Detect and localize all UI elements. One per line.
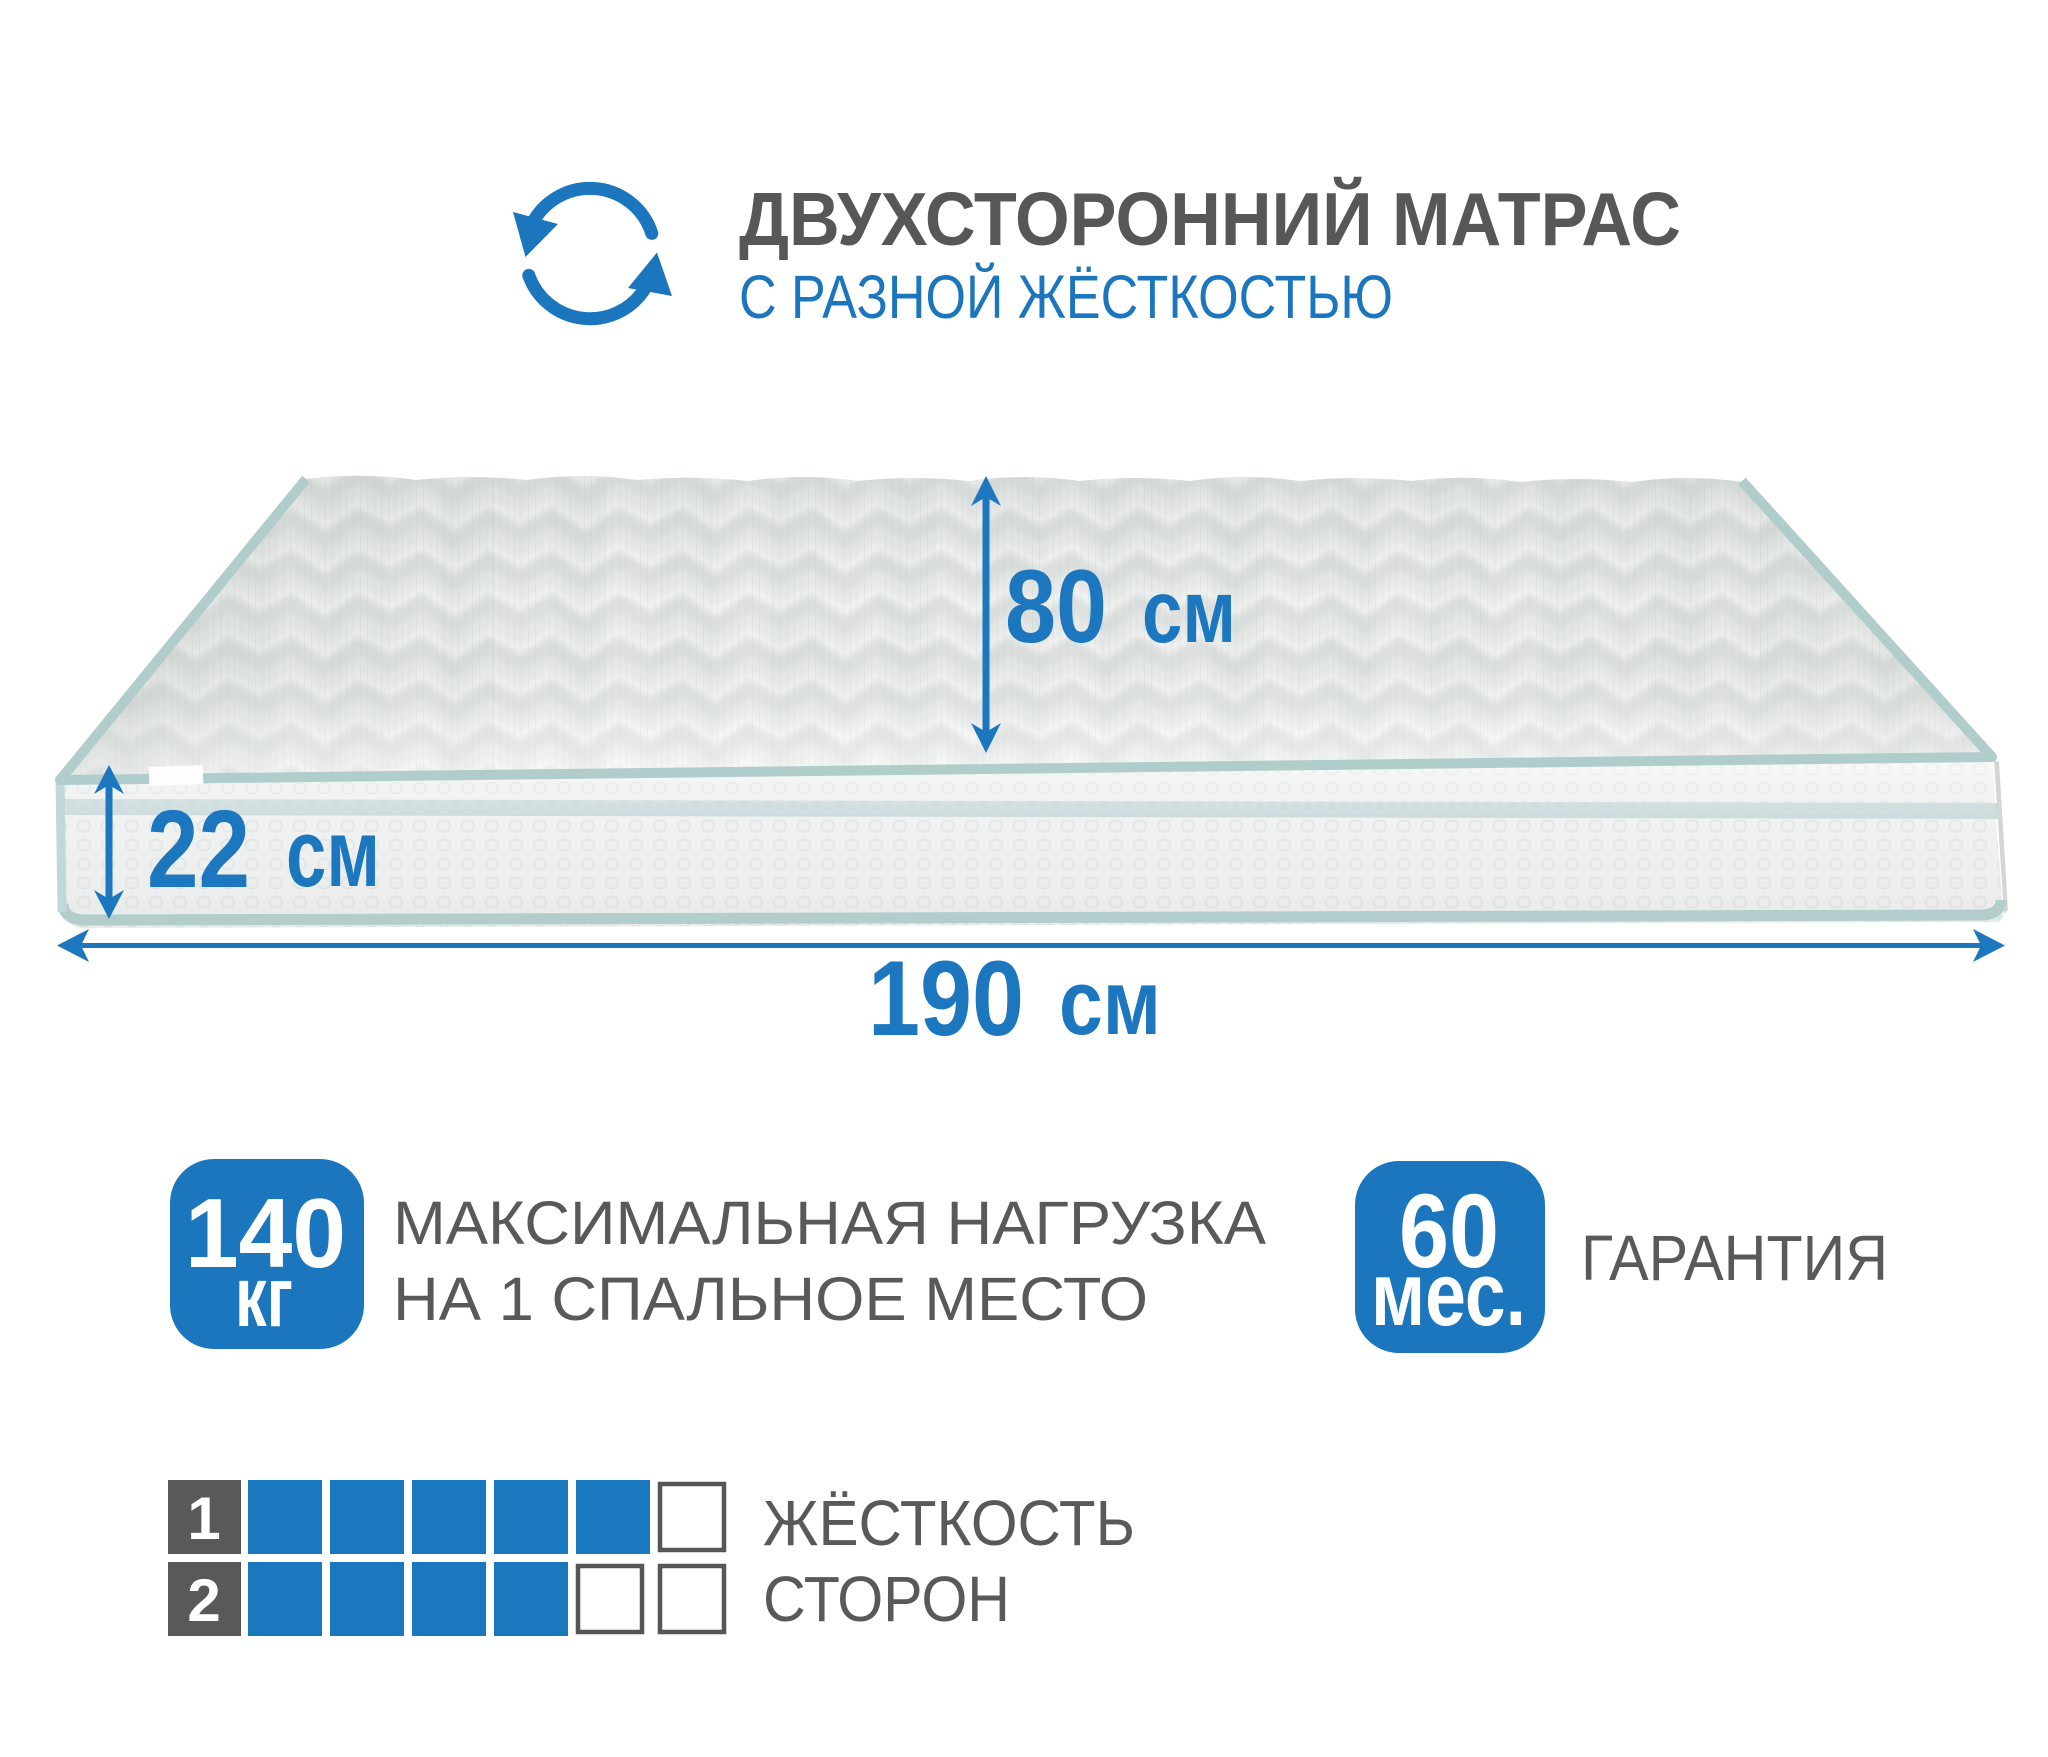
svg-text:см: см — [1142, 561, 1236, 661]
svg-text:см: см — [286, 800, 380, 907]
svg-text:см: см — [1059, 952, 1161, 1054]
svg-text:ГАРАНТИЯ: ГАРАНТИЯ — [1581, 1222, 1888, 1294]
svg-text:кг: кг — [235, 1250, 293, 1345]
svg-text:мес.: мес. — [1371, 1245, 1526, 1345]
svg-text:СТОРОН: СТОРОН — [763, 1563, 1010, 1635]
svg-text:МАКСИМАЛЬНАЯ НАГРУЗКА: МАКСИМАЛЬНАЯ НАГРУЗКА — [393, 1189, 1266, 1257]
svg-text:1: 1 — [187, 1485, 220, 1552]
svg-text:С РАЗНОЙ ЖЁСТКОСТЬЮ: С РАЗНОЙ ЖЁСТКОСТЬЮ — [739, 262, 1393, 331]
svg-text:22: 22 — [147, 788, 250, 911]
svg-text:190: 190 — [868, 938, 1024, 1058]
svg-text:НА 1 СПАЛЬНОЕ МЕСТО: НА 1 СПАЛЬНОЕ МЕСТО — [393, 1265, 1148, 1333]
svg-text:ДВУХСТОРОННИЙ МАТРАС: ДВУХСТОРОННИЙ МАТРАС — [739, 177, 1681, 261]
svg-text:ЖЁСТКОСТЬ: ЖЁСТКОСТЬ — [763, 1487, 1135, 1559]
svg-text:2: 2 — [187, 1567, 220, 1634]
svg-text:80: 80 — [1005, 549, 1107, 665]
